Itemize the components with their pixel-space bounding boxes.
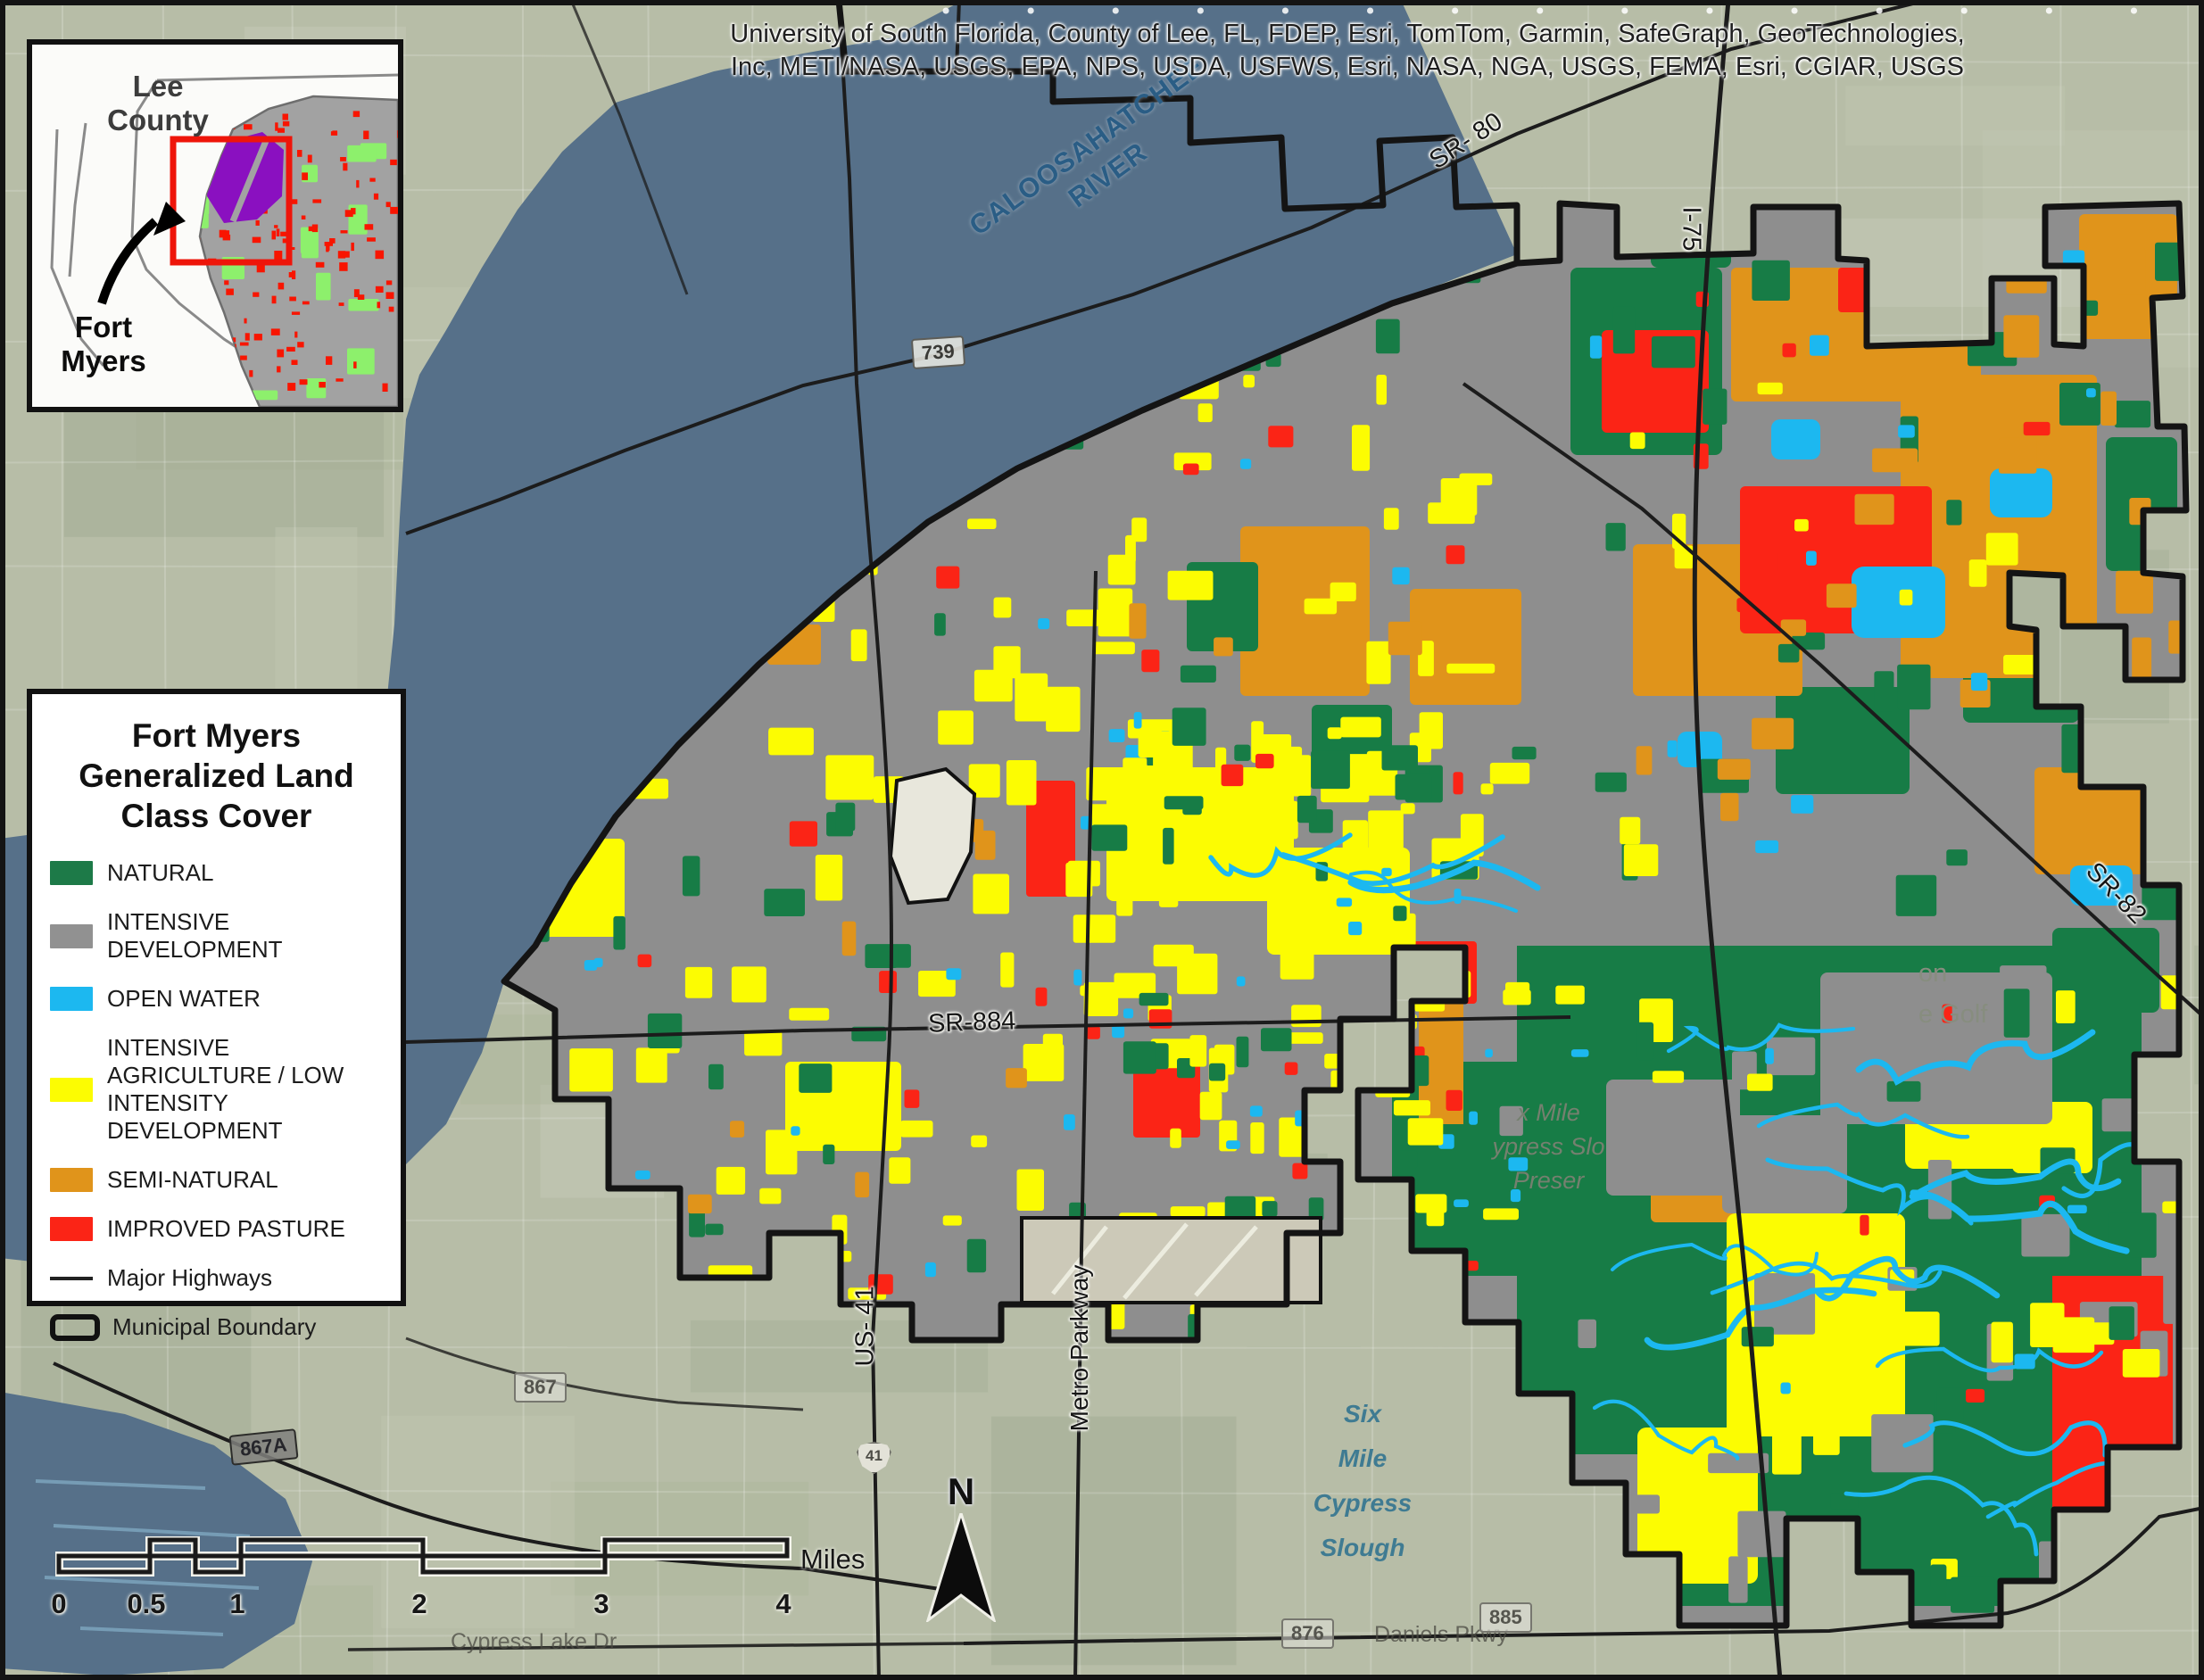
- scale-tick-1: 1: [229, 1588, 244, 1620]
- legend-item-municipal-boundary: Municipal Boundary: [50, 1313, 383, 1341]
- inset-region-label: Lee County: [91, 70, 225, 137]
- legend-item-open-water: OPEN WATER: [50, 985, 383, 1013]
- scale-unit-label: Miles: [800, 1543, 865, 1576]
- highway-line-icon: [50, 1277, 93, 1280]
- legend-item-major-highways: Major Highways: [50, 1264, 383, 1292]
- north-arrow: N: [921, 1470, 1001, 1626]
- scale-tick-3: 3: [593, 1588, 609, 1620]
- legend-item-agriculture: INTENSIVE AGRICULTURE / LOW INTENSITY DE…: [50, 1034, 383, 1145]
- slough-label: Six Mile Cypress Slough: [1305, 1392, 1421, 1570]
- route-shield-739: 739: [911, 335, 965, 369]
- road-label-i75: I-75: [1677, 185, 1706, 274]
- legend-item-intensive-development: INTENSIVE DEVELOPMENT: [50, 908, 383, 964]
- road-label-metro-parkway: Metro Parkway: [1065, 1246, 1094, 1451]
- swatch-semi-natural: [50, 1168, 93, 1192]
- legend-item-semi-natural: SEMI-NATURAL: [50, 1166, 383, 1194]
- swatch-open-water: [50, 987, 93, 1011]
- swatch-natural: [50, 861, 93, 885]
- scale-tick-05: 0.5: [127, 1588, 165, 1620]
- swatch-improved-pasture: [50, 1217, 93, 1241]
- preserve-label: x Mile ypress Slo Preser: [1471, 1096, 1627, 1197]
- road-label-sr884: SR-884: [927, 1006, 1015, 1039]
- route-shield-876: 876: [1281, 1618, 1334, 1649]
- road-label-us41: US- 41: [851, 1269, 881, 1385]
- north-arrow-icon: [926, 1513, 996, 1622]
- scale-tick-0: 0: [51, 1588, 66, 1620]
- legend: Fort Myers Generalized Land Class Cover …: [27, 689, 406, 1306]
- swatch-intensive-development: [50, 924, 93, 948]
- attribution-line2: Inc, METI/NASA, USGS, EPA, NPS, USDA, US…: [500, 51, 2195, 84]
- boundary-outline-icon: [50, 1314, 100, 1341]
- route-shield-867: 867: [514, 1372, 567, 1403]
- scale-tick-2: 2: [411, 1588, 427, 1620]
- north-label: N: [921, 1470, 1001, 1513]
- legend-item-improved-pasture: IMPROVED PASTURE: [50, 1215, 383, 1243]
- route-shield-885: 885: [1479, 1602, 1532, 1633]
- scale-bar: 0 0.5 1 2 3 4 Miles: [55, 1536, 930, 1652]
- scale-bar-graphic: [55, 1536, 796, 1579]
- golf-label: on e Golf: [1918, 953, 2043, 1035]
- swatch-agriculture: [50, 1078, 93, 1102]
- attribution-text: University of South Florida, County of L…: [500, 18, 2195, 84]
- legend-title: Fort Myers Generalized Land Class Cover: [50, 716, 383, 836]
- legend-item-natural: NATURAL: [50, 859, 383, 887]
- map-canvas[interactable]: University of South Florida, County of L…: [0, 0, 2204, 1680]
- inset-locator-map: Lee County Fort Myers: [27, 39, 403, 412]
- scale-tick-4: 4: [775, 1588, 791, 1620]
- inset-city-label: Fort Myers: [50, 310, 157, 378]
- attribution-line1: University of South Florida, County of L…: [500, 18, 2195, 51]
